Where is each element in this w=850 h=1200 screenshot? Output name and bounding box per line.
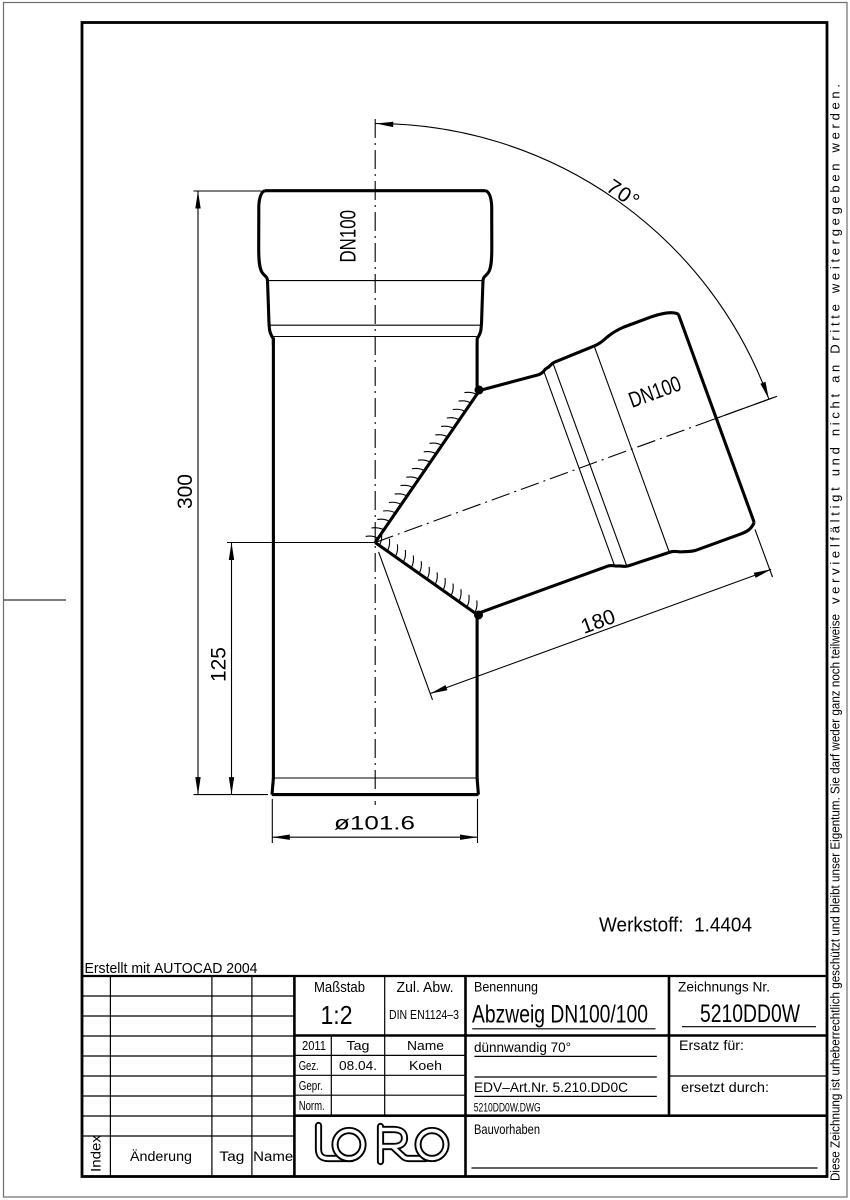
svg-text:Tag: Tag xyxy=(219,1149,244,1164)
svg-text:Name: Name xyxy=(407,1038,444,1053)
svg-text:Gez.: Gez. xyxy=(299,1058,319,1073)
svg-text:Werkstoff: 1.4404: Werkstoff: 1.4404 xyxy=(599,914,752,937)
svg-text:5210DD0W: 5210DD0W xyxy=(700,1000,800,1028)
svg-text:DIN EN1124–3: DIN EN1124–3 xyxy=(389,1008,459,1022)
svg-text:Ersatz für:: Ersatz für: xyxy=(679,1037,744,1053)
svg-text:Erstellt mit AUTOCAD 2004: Erstellt mit AUTOCAD 2004 xyxy=(85,960,258,977)
svg-text:DN100: DN100 xyxy=(336,210,361,263)
svg-text:Zul. Abw.: Zul. Abw. xyxy=(397,980,454,996)
svg-text:Änderung: Änderung xyxy=(130,1149,192,1164)
svg-text:Zeichnungs Nr.: Zeichnungs Nr. xyxy=(678,980,770,995)
svg-text:Gepr.: Gepr. xyxy=(299,1078,323,1093)
svg-text:300: 300 xyxy=(174,474,197,509)
svg-text:Index: Index xyxy=(89,1135,104,1172)
svg-text:Tag: Tag xyxy=(347,1038,370,1053)
svg-text:1:2: 1:2 xyxy=(321,1000,353,1030)
svg-text:Bauvorhaben: Bauvorhaben xyxy=(474,1121,540,1137)
svg-text:Norm.: Norm. xyxy=(299,1098,325,1113)
svg-text:ø101.6: ø101.6 xyxy=(334,814,415,835)
svg-text:08.04.: 08.04. xyxy=(339,1058,377,1073)
svg-text:125: 125 xyxy=(208,647,231,682)
svg-text:dünnwandig 70°: dünnwandig 70° xyxy=(474,1039,571,1055)
svg-text:2011: 2011 xyxy=(302,1038,326,1053)
svg-text:5210DD0W.DWG: 5210DD0W.DWG xyxy=(474,1101,541,1115)
svg-text:Koeh: Koeh xyxy=(409,1058,442,1073)
svg-text:Abzweig DN100/100: Abzweig DN100/100 xyxy=(472,1001,648,1029)
svg-text:Name: Name xyxy=(253,1149,293,1164)
svg-text:EDV–Art.Nr. 5.210.DD0C: EDV–Art.Nr. 5.210.DD0C xyxy=(474,1079,628,1095)
svg-text:ersetzt durch:: ersetzt durch: xyxy=(681,1079,769,1095)
svg-text:Benennung: Benennung xyxy=(474,980,538,995)
svg-text:Maßstab: Maßstab xyxy=(314,980,365,996)
svg-text:Diese Zeichnung ist urheberrec: Diese Zeichnung ist urheberrechtlich ges… xyxy=(828,614,843,1181)
